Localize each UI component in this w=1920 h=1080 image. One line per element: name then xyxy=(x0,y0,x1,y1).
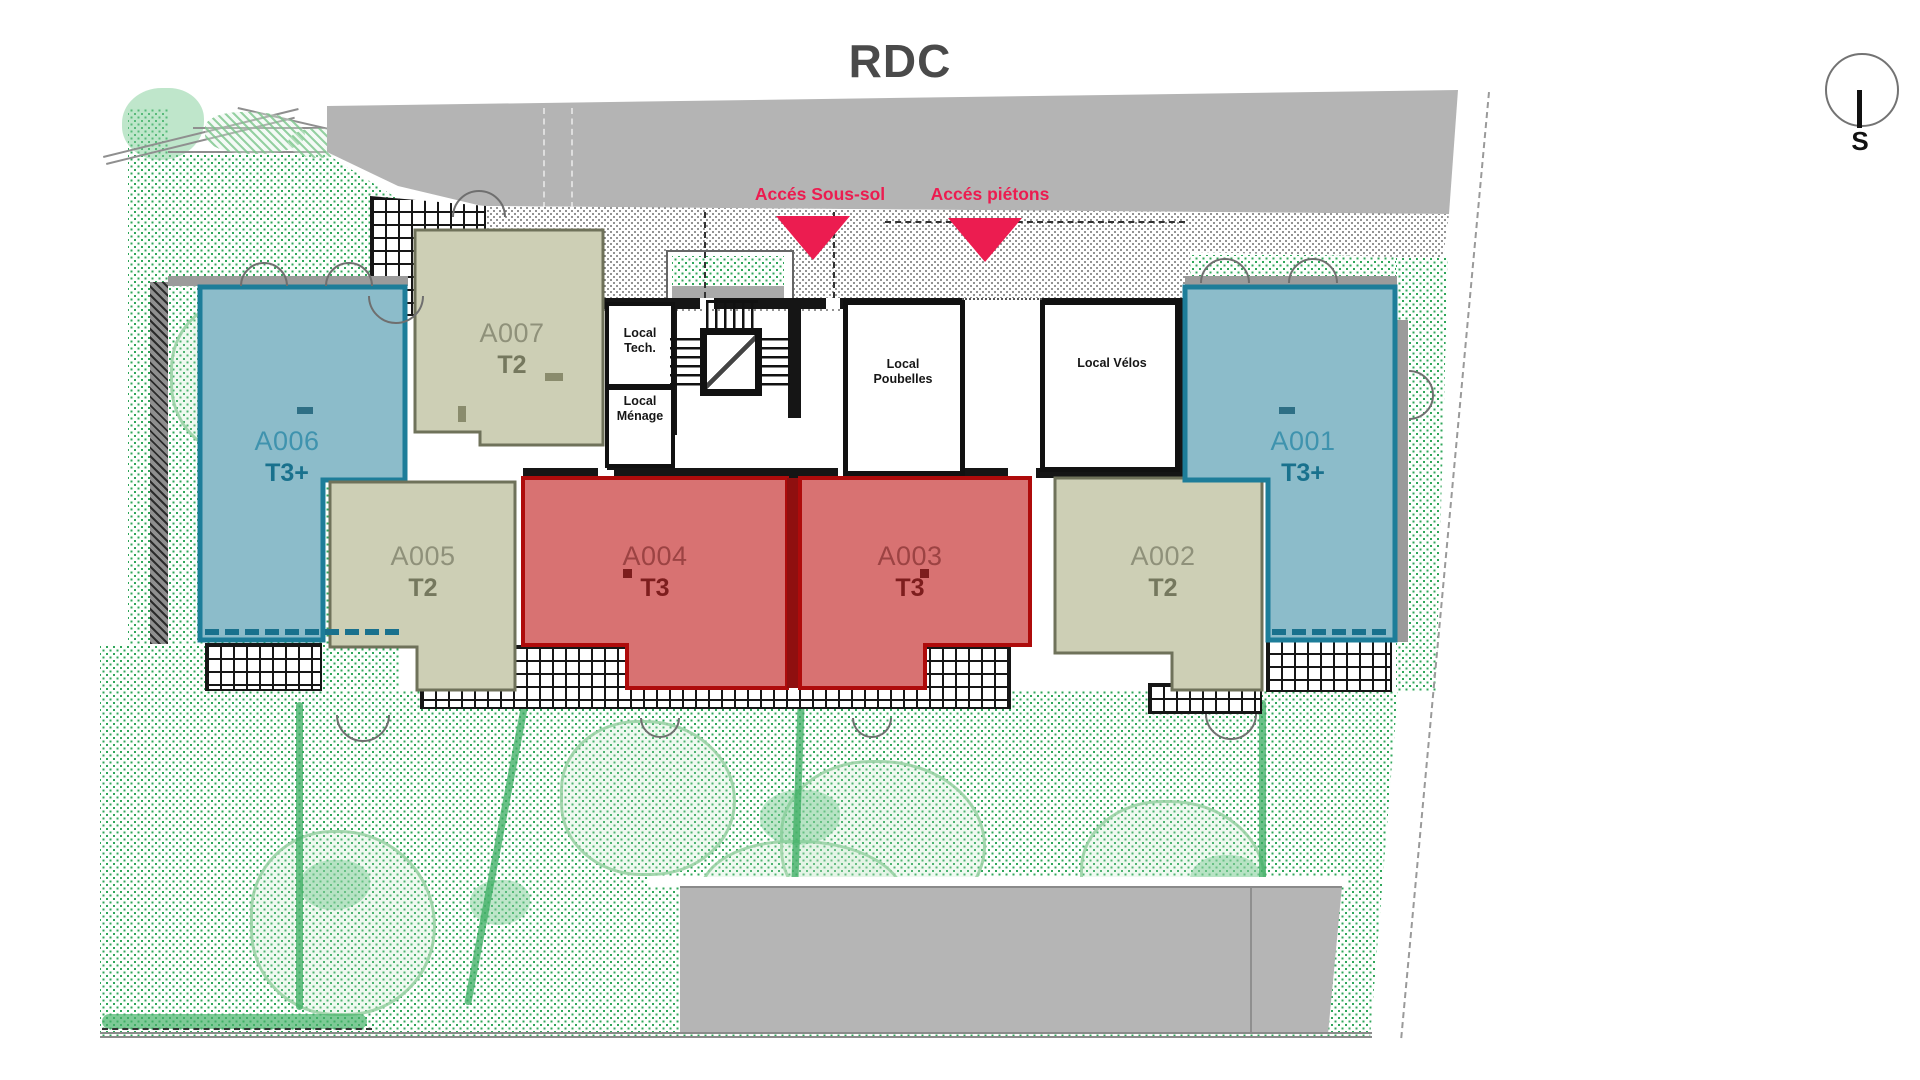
fixture-mark xyxy=(458,406,466,422)
room-label-local-velos: Local Vélos xyxy=(1077,356,1147,371)
room-label-local-poubelles: Local Poubelles xyxy=(863,357,943,387)
floor-plan-canvas: RDC S xyxy=(0,0,1920,1080)
apartment-a004-shape[interactable] xyxy=(523,478,787,688)
apartment-a007-shape[interactable] xyxy=(415,230,603,445)
apartment-a003-shape[interactable] xyxy=(800,478,1030,688)
parking-divider-line xyxy=(1250,888,1252,1036)
room-label-local-menage: Local Ménage xyxy=(609,394,671,424)
fixture-mark xyxy=(623,569,632,578)
site-boundary-dashes xyxy=(102,1028,372,1030)
site-boundary-line-bottom xyxy=(100,1032,1372,1038)
fixture-mark xyxy=(297,407,313,414)
apartment-a005-shape[interactable] xyxy=(330,482,515,690)
apartment-a002-shape[interactable] xyxy=(1055,478,1262,690)
parking-separator xyxy=(648,877,1348,886)
fixture-mark xyxy=(545,373,563,381)
parking-area xyxy=(680,886,1342,1036)
room-label-local-tech: Local Tech. xyxy=(611,326,669,356)
fixture-mark xyxy=(1279,407,1295,414)
fixture-mark xyxy=(920,569,929,578)
